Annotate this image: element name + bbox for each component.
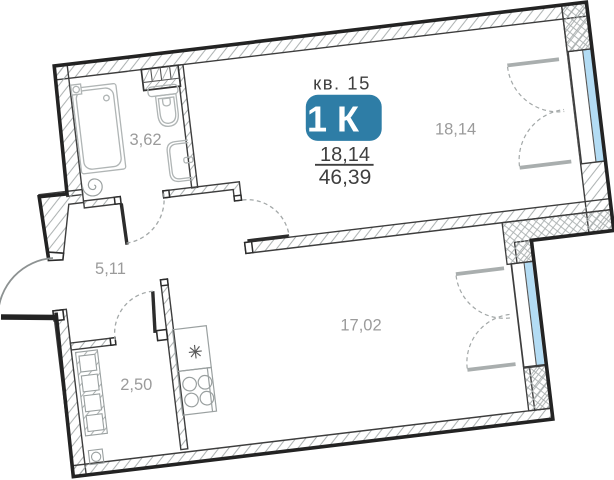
svg-text:17,02: 17,02 [340,317,381,335]
svg-text:46,39: 46,39 [319,166,372,189]
svg-text:3,62: 3,62 [129,131,161,149]
svg-text:2,50: 2,50 [120,376,152,394]
svg-text:1К: 1К [307,99,369,140]
svg-text:кв. 15: кв. 15 [313,73,371,94]
svg-text:5,11: 5,11 [95,260,126,278]
svg-text:18,14: 18,14 [320,144,370,166]
svg-text:18,14: 18,14 [435,121,476,139]
